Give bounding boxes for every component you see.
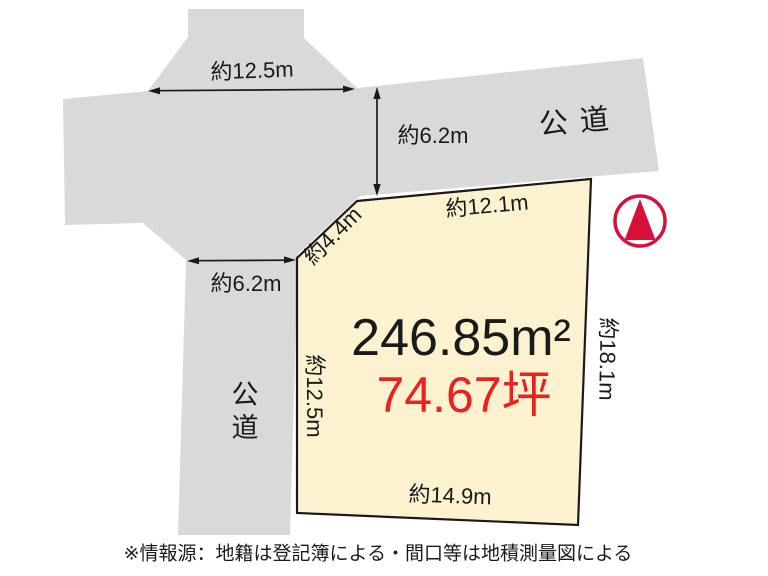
north-arrow-icon <box>615 196 665 246</box>
dim-parcel-bottom: 約14.9m <box>408 484 492 509</box>
road-label-left: 公道 <box>229 380 256 446</box>
source-note: ※情報源：地籍は登記簿による・間口等は地積測量図による <box>124 545 633 564</box>
dim-top-frontage: 約12.5m <box>210 59 294 84</box>
dim-parcel-left: 約12.5m <box>303 354 325 437</box>
diagram-shapes <box>0 0 768 576</box>
dim-top-road-width: 約6.2m <box>398 125 469 147</box>
parcel-area-tsubo: 74.67坪 <box>376 370 551 420</box>
dim-parcel-right: 約18.1m <box>595 317 618 401</box>
land-plot-diagram: 約12.5m 約6.2m 公 道 約12.1m 約4.4m 約6.2m 公道 約… <box>0 0 768 576</box>
parcel-area-m2: 246.85m² <box>351 312 571 364</box>
dim-left-road-width: 約6.2m <box>211 273 282 295</box>
road-label-top: 公 道 <box>538 105 612 140</box>
